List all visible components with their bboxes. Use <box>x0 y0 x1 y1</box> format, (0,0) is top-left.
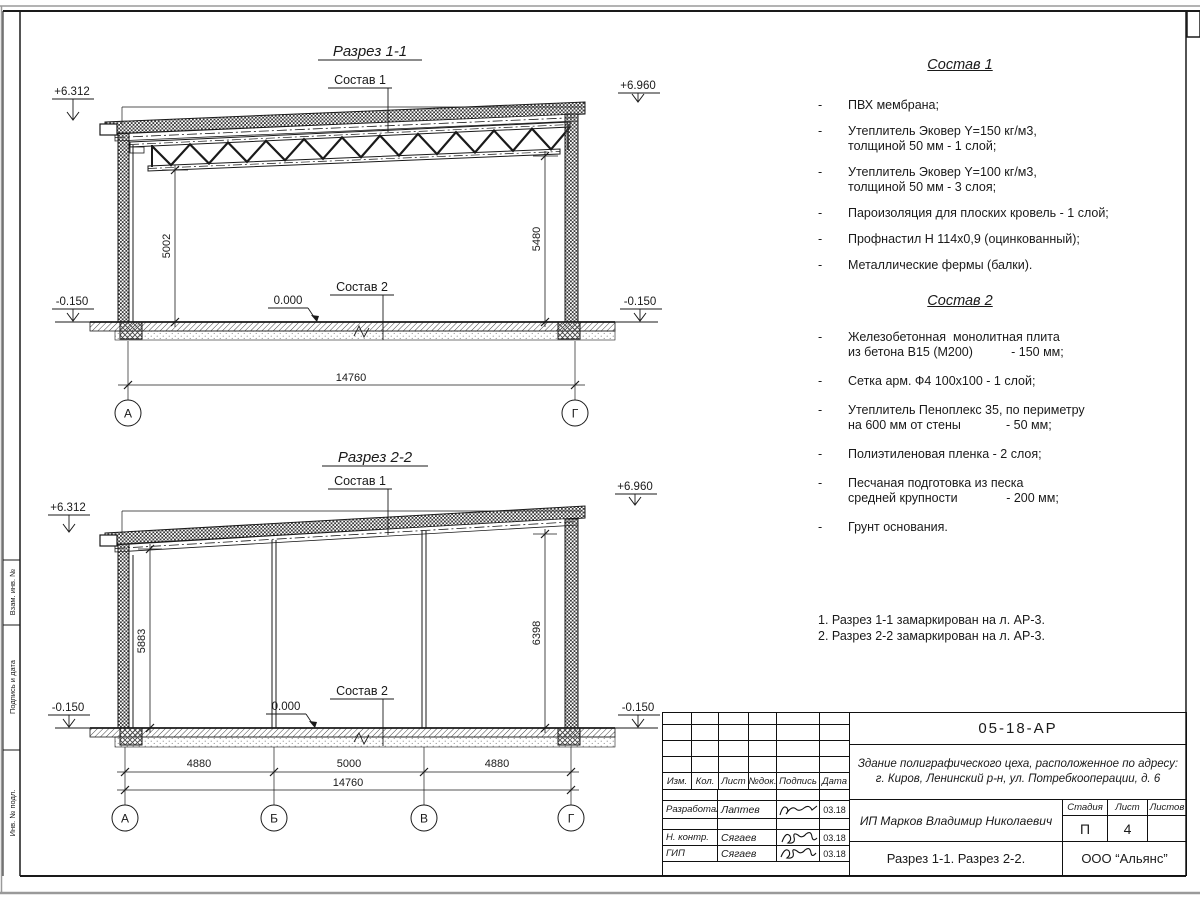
name-syagaev-1: Сягаев <box>718 830 777 845</box>
drawing-notes: 1. Разрез 1-1 замаркирован на л. АР-3. 2… <box>818 612 1045 644</box>
title-block: Изм. Кол. Лист №док. Подпись Дата Разраб… <box>662 712 1187 876</box>
elev-minus0150-right: -0.150 <box>624 296 657 308</box>
elev-6960: +6.960 <box>620 80 656 92</box>
elev-6312: +6.312 <box>54 86 90 98</box>
sostav2-list: -Железобетонная монолитная плита из бето… <box>818 330 1128 549</box>
axis-bubble-a-sec1: А <box>124 407 132 421</box>
date-row3: 03.18 <box>820 846 849 861</box>
signature-laptev <box>777 802 819 818</box>
signature-syagaev-2 <box>777 846 819 861</box>
signature-cell <box>777 830 820 845</box>
date-row2: 03.18 <box>820 830 849 845</box>
list-item: -ПВХ мембрана; <box>818 98 1128 113</box>
signature-cell <box>777 846 820 861</box>
axis-bubble-a-sec2: А <box>121 812 129 826</box>
axis-bubble-g-sec2: Г <box>568 812 575 826</box>
list-item-text: Железобетонная монолитная плита из бетон… <box>848 330 1064 360</box>
dim-5480: 5480 <box>531 227 543 251</box>
col-header-list: Лист <box>719 773 749 789</box>
list-item: -Сетка арм. Ф4 100х100 - 1 слой; <box>818 374 1128 389</box>
col-header-kol: Кол. <box>692 773 719 789</box>
roof-end-cap <box>100 124 117 135</box>
elev-minus0150-right-2: -0.150 <box>622 702 655 714</box>
name-laptev: Лаптев <box>718 801 777 818</box>
dim-14760-sec1: 14760 <box>336 372 367 384</box>
list-item-text: Профнастил Н 114х0,9 (оцинкованный); <box>848 232 1080 247</box>
list-item: -Утеплитель Пеноплекс 35, по периметру н… <box>818 403 1128 433</box>
list-item-text: Утеплитель Пеноплекс 35, по периметру на… <box>848 403 1085 433</box>
section-2-2-drawing: Разрез 2-2 Состав 1 <box>48 449 660 831</box>
signature-cell <box>777 801 820 818</box>
list-item: -Грунт основания. <box>818 520 1128 535</box>
sheet-value: 4 <box>1108 816 1148 841</box>
sheets-label: Листов <box>1148 800 1186 815</box>
col-header-izm: Изм. <box>663 773 692 789</box>
axis-bubble-v-sec2: В <box>420 812 428 826</box>
note-line-2: 2. Разрез 2-2 замаркирован на л. АР-3. <box>818 628 1045 644</box>
list-item-text: Пароизоляция для плоских кровель - 1 сло… <box>848 206 1109 221</box>
bullet-dash: - <box>818 447 848 462</box>
role-nkontr: Н. контр. <box>663 830 718 845</box>
bullet-dash: - <box>818 98 848 113</box>
list-item-text: Песчаная подготовка из песка средней кру… <box>848 476 1059 506</box>
elev-minus0150-left: -0.150 <box>56 296 89 308</box>
dim-5883: 5883 <box>136 629 148 653</box>
section1-title: Разрез 1-1 <box>333 43 407 60</box>
list-item: -Песчаная подготовка из песка средней кр… <box>818 476 1128 506</box>
bullet-dash: - <box>818 520 848 535</box>
corner-stamp-box <box>1187 11 1200 37</box>
list-item-text: ПВХ мембрана; <box>848 98 939 113</box>
bullet-dash: - <box>818 403 848 433</box>
object-line-1: Здание полиграфического цеха, расположен… <box>858 757 1178 772</box>
strip-label-inv: Инв. № подл. <box>8 790 17 837</box>
object-line-2: г. Киров, Ленинский р-н, ул. Потребкоопе… <box>876 772 1160 787</box>
elev-6960-2: +6.960 <box>617 481 653 493</box>
sheet-label: Лист <box>1108 800 1148 815</box>
role-razrabotal: Разработал <box>663 801 718 818</box>
stage-value: П <box>1063 816 1108 841</box>
left-wall-2 <box>118 544 129 728</box>
dim-6398: 6398 <box>531 621 543 645</box>
drawing-sheet: Взам. инв. № Подпись и дата Инв. № подл.… <box>0 0 1200 900</box>
list-item: -Профнастил Н 114х0,9 (оцинкованный); <box>818 232 1128 247</box>
signature-syagaev-1 <box>777 830 819 845</box>
list-item: -Полиэтиленовая пленка - 2 слоя; <box>818 447 1128 462</box>
bullet-dash: - <box>818 476 848 506</box>
list-item: -Пароизоляция для плоских кровель - 1 сл… <box>818 206 1128 221</box>
strip-label-podpis: Подпись и дата <box>8 659 17 714</box>
title-block-revision-table: Изм. Кол. Лист №док. Подпись Дата Разраб… <box>663 713 850 875</box>
bullet-dash: - <box>818 258 848 273</box>
sostav1-callout-2: Состав 1 <box>334 474 386 488</box>
bottom-dims-1: 14760 А Г <box>115 341 588 426</box>
axis-bubble-g-sec1: Г <box>572 407 579 421</box>
dim-4880-right: 4880 <box>485 758 509 770</box>
note-line-1: 1. Разрез 1-1 замаркирован на л. АР-3. <box>818 612 1045 628</box>
client-name: ИП Марков Владимир Николаевич <box>850 800 1062 842</box>
date-row1: 03.18 <box>820 801 849 818</box>
bullet-dash: - <box>818 206 848 221</box>
list-item: -Утеплитель Эковер Y=100 кг/м3, толщиной… <box>818 165 1128 195</box>
sostav2-list-title: Состав 2 <box>820 293 1100 309</box>
elev-6312-2: +6.312 <box>50 502 86 514</box>
col-header-podpis: Подпись <box>777 773 820 789</box>
section-1-1-drawing: Разрез 1-1 <box>52 43 662 426</box>
name-syagaev-2: Сягаев <box>718 846 777 861</box>
list-item: -Железобетонная монолитная плита из бето… <box>818 330 1128 360</box>
dim-4880-left: 4880 <box>187 758 211 770</box>
sostav1-title-text: Состав 1 <box>927 57 992 73</box>
interior-columns <box>272 531 426 728</box>
stage-label: Стадия <box>1063 800 1108 815</box>
sostav1-list-title: Состав 1 <box>820 57 1100 73</box>
bullet-dash: - <box>818 124 848 154</box>
bullet-dash: - <box>818 374 848 389</box>
title-block-main: 05-18-АР Здание полиграфического цеха, р… <box>850 713 1186 875</box>
bottom-dims-2: 4880 5000 4880 14760 А Б В Г <box>112 747 584 831</box>
sostav1-callout: Состав 1 <box>334 73 386 87</box>
sheets-value <box>1148 816 1186 841</box>
sostav2-callout-2: Состав 2 <box>336 684 388 698</box>
bullet-dash: - <box>818 330 848 360</box>
col-header-data: Дата <box>820 773 849 789</box>
col-header-ndok: №док. <box>749 773 777 789</box>
sostav1-list: -ПВХ мембрана; -Утеплитель Эковер Y=150 … <box>818 98 1128 284</box>
section2-title: Разрез 2-2 <box>338 449 413 466</box>
axis-bubble-b-sec2: Б <box>270 812 278 826</box>
dim-5000: 5000 <box>337 758 361 770</box>
vertical-dims-2: 5883 6398 <box>136 529 557 733</box>
roof-end-cap-2 <box>100 535 117 546</box>
list-item: -Металлические фермы (балки). <box>818 258 1128 273</box>
list-item-text: Утеплитель Эковер Y=150 кг/м3, толщиной … <box>848 124 1037 154</box>
margin-strip: Взам. инв. № Подпись и дата Инв. № подл. <box>3 560 20 836</box>
drawing-title: Разрез 1-1. Разрез 2-2. <box>850 842 1062 875</box>
zero-level-mark: 0.000 <box>274 295 303 307</box>
vertical-dims-1: 5002 5480 <box>161 151 558 327</box>
left-wall <box>118 133 129 322</box>
sostav2-callout: Состав 2 <box>336 280 388 294</box>
list-item-text: Сетка арм. Ф4 100х100 - 1 слой; <box>848 374 1035 389</box>
right-wall-2 <box>565 519 578 728</box>
company-name: ООО “Альянс” <box>1063 842 1186 875</box>
strip-label-vzam: Взам. инв. № <box>8 569 17 615</box>
right-wall <box>565 114 578 322</box>
document-code: 05-18-АР <box>850 713 1186 745</box>
dim-5002: 5002 <box>161 234 173 258</box>
bullet-dash: - <box>818 232 848 247</box>
list-item: -Утеплитель Эковер Y=150 кг/м3, толщиной… <box>818 124 1128 154</box>
list-item-text: Полиэтиленовая пленка - 2 слоя; <box>848 447 1042 462</box>
list-item-text: Грунт основания. <box>848 520 948 535</box>
elev-minus0150-left-2: -0.150 <box>52 702 85 714</box>
dim-14760-sec2: 14760 <box>333 777 364 789</box>
zero-level-mark-2: 0.000 <box>272 701 301 713</box>
bullet-dash: - <box>818 165 848 195</box>
sostav2-title-text: Состав 2 <box>927 293 992 309</box>
object-description: Здание полиграфического цеха, расположен… <box>850 745 1186 800</box>
list-item-text: Металлические фермы (балки). <box>848 258 1032 273</box>
role-gip: ГИП <box>663 846 718 861</box>
list-item-text: Утеплитель Эковер Y=100 кг/м3, толщиной … <box>848 165 1037 195</box>
